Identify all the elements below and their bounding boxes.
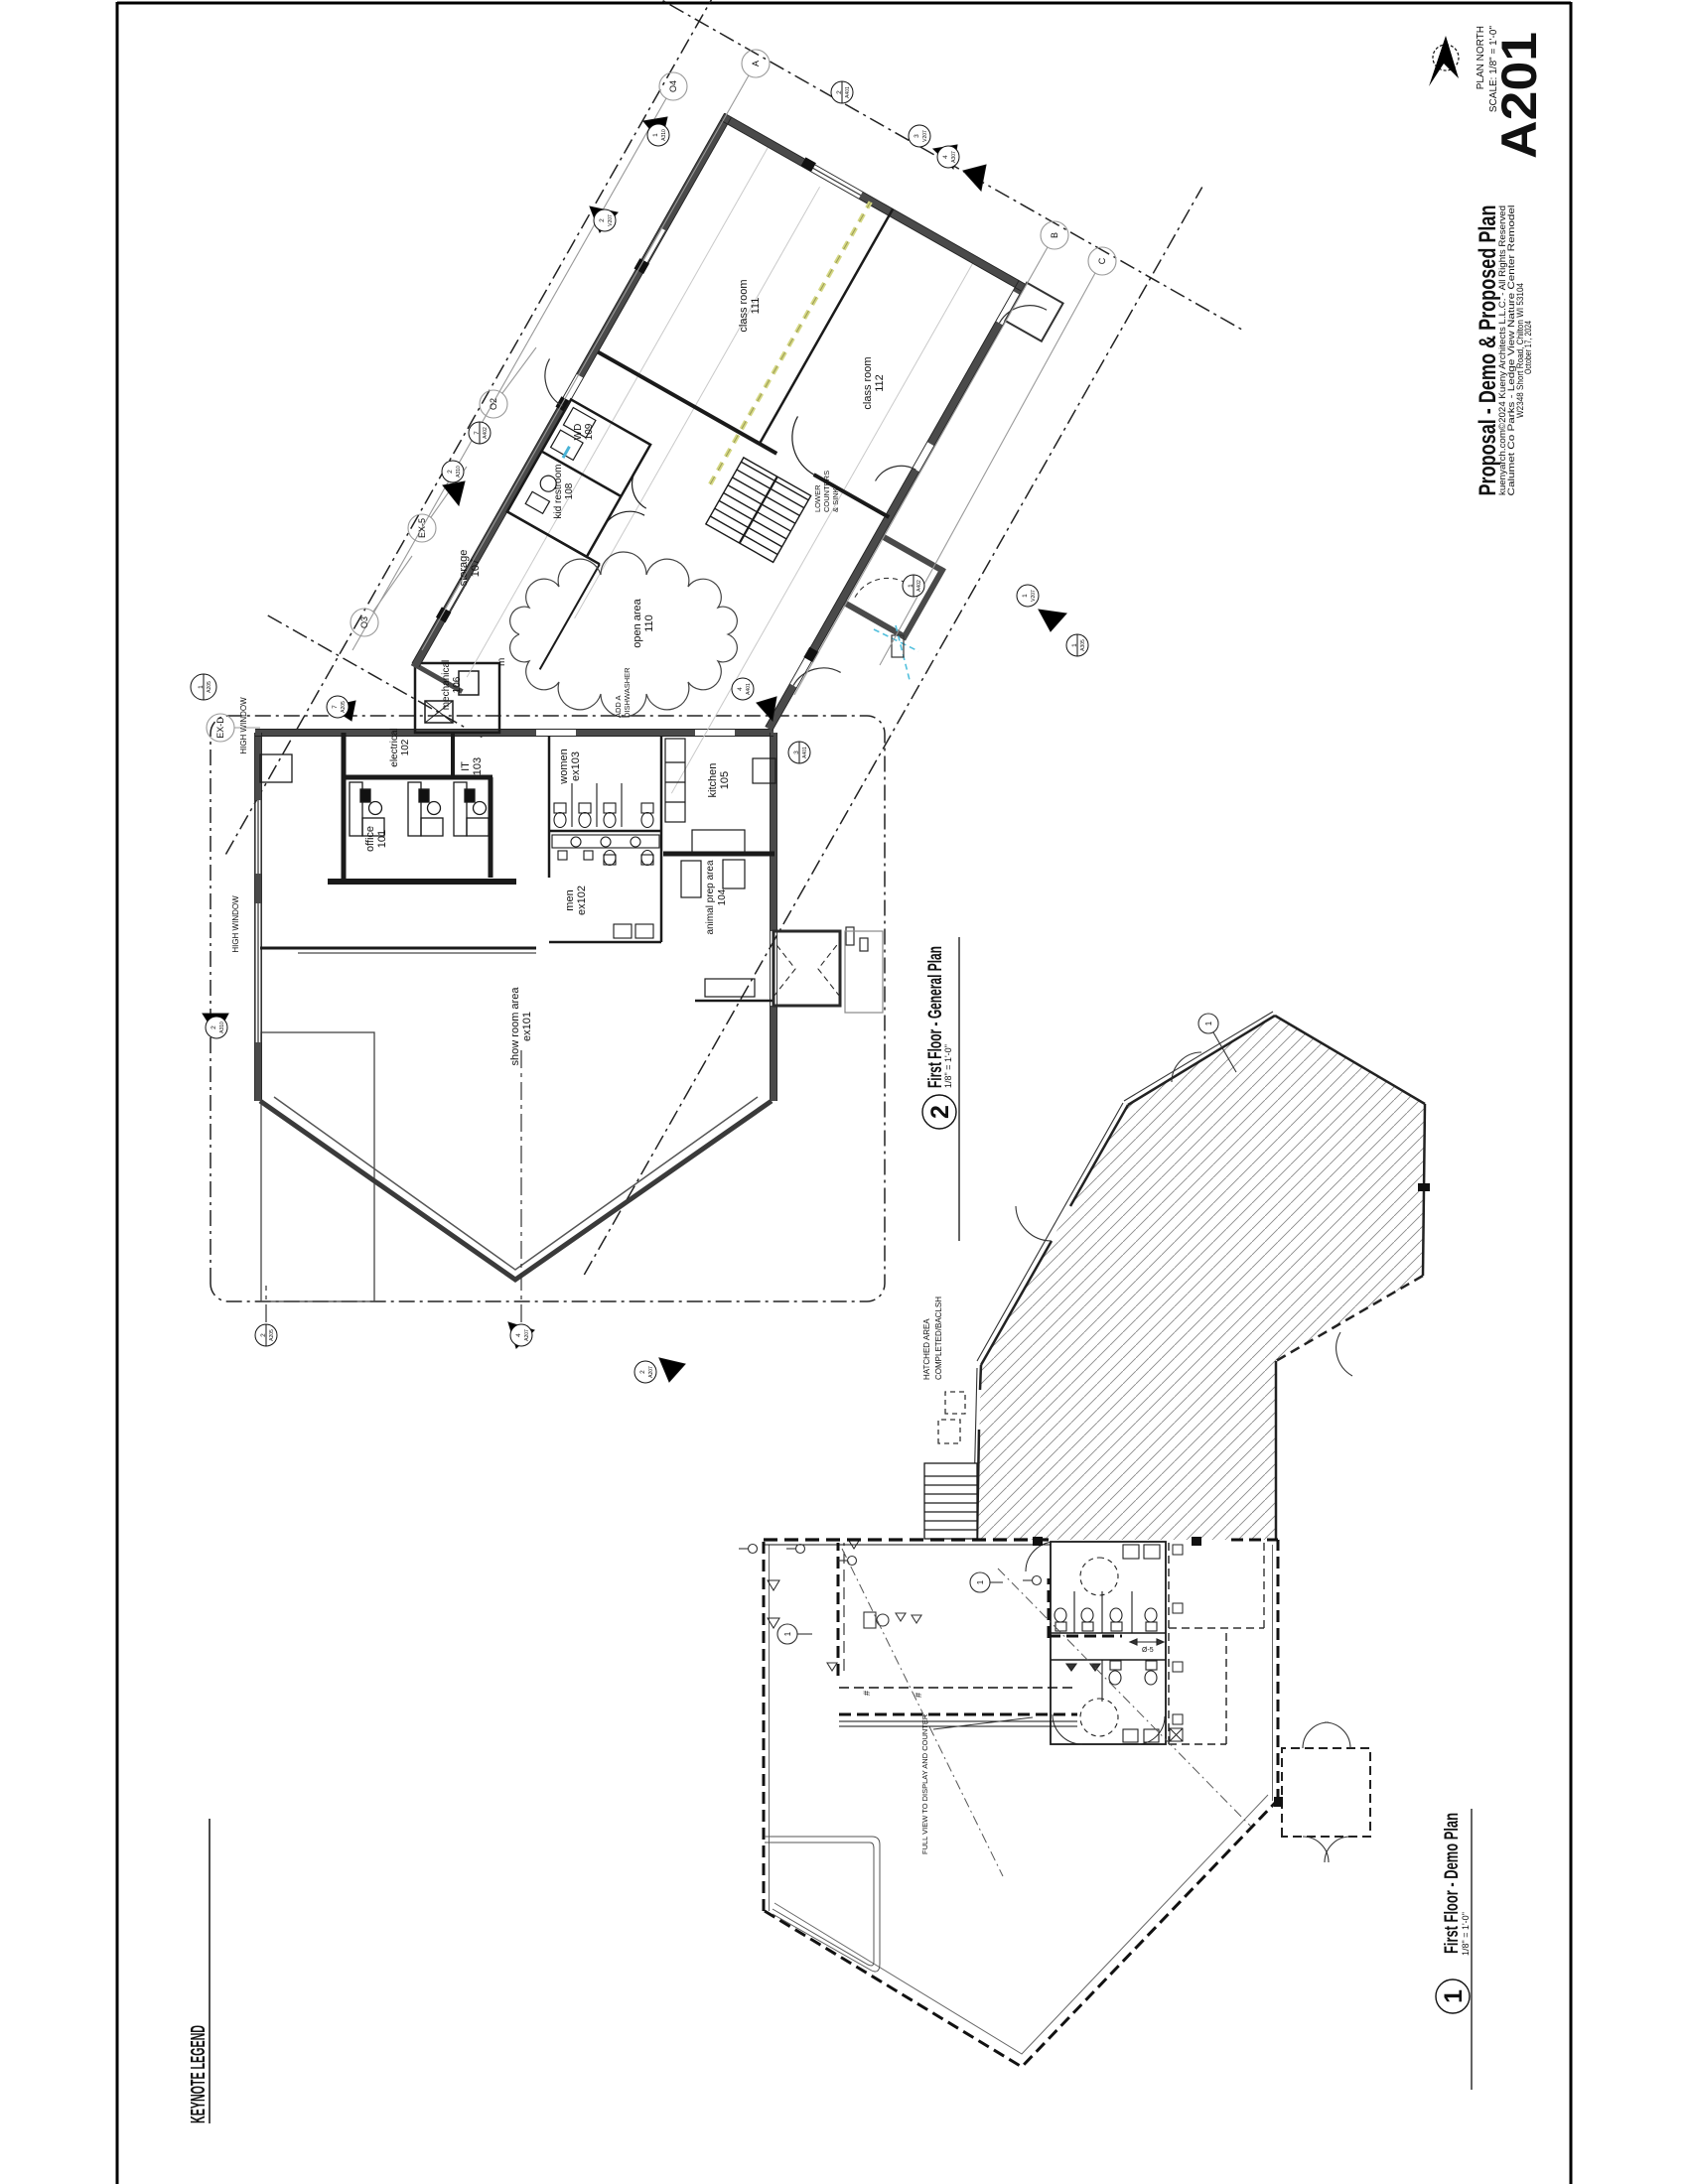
svg-text:show room area: show room area [509,987,521,1066]
svg-text:3: 3 [793,751,800,754]
svg-text:112: 112 [874,374,886,392]
svg-text:3: 3 [914,134,920,138]
svg-text:electrical: electrical [389,728,400,766]
svg-text:m: m [496,658,507,666]
svg-text:kitchen: kitchen [707,763,719,798]
svg-text:EX-5: EX-5 [417,518,427,538]
svg-text:111: 111 [750,298,762,315]
svg-text:A205: A205 [207,681,212,693]
svg-text:1: 1 [1440,1989,1468,2003]
svg-text:A207: A207 [648,1366,654,1378]
svg-text:A305: A305 [1080,639,1086,651]
svg-text:ADD A: ADD A [614,695,623,718]
svg-text:ex103: ex103 [570,751,582,781]
svg-text:1: 1 [1022,594,1029,598]
svg-text:A401: A401 [802,747,808,758]
svg-text:EX-D: EX-D [215,717,225,739]
svg-text:110: 110 [643,614,655,632]
svg-text:1/8" = 1'-0": 1/8" = 1'-0" [1461,1912,1471,1956]
svg-text:4: 4 [942,155,949,159]
svg-text:1: 1 [1204,1021,1213,1025]
svg-text:109: 109 [584,423,595,440]
svg-text:102: 102 [400,739,411,755]
svg-text:1: 1 [908,584,914,588]
svg-text:2: 2 [447,470,454,474]
svg-text:O4: O4 [668,80,678,92]
svg-text:2: 2 [639,1370,646,1374]
svg-text:7: 7 [332,705,339,709]
svg-text:4: 4 [737,687,744,691]
svg-text:2: 2 [836,90,843,94]
svg-text:A402: A402 [916,580,922,592]
svg-text:1: 1 [198,685,205,689]
svg-text:7: 7 [474,431,481,435]
svg-text:KEYNOTE LEGEND: KEYNOTE LEGEND [188,2025,210,2123]
svg-text:storage: storage [458,550,470,587]
svg-text:DISHWASHER: DISHWASHER [623,667,632,718]
svg-text:A310: A310 [219,1022,225,1033]
svg-text:101: 101 [376,830,388,848]
svg-text:IT: IT [460,761,472,771]
svg-text:PLAN NORTH: PLAN NORTH [1476,26,1486,89]
svg-text:4: 4 [515,1333,522,1337]
svg-text:WD: WD [573,424,584,441]
svg-text:A: A [751,61,761,67]
svg-text:First Floor - Demo Plan: First Floor - Demo Plan [1442,1813,1463,1954]
svg-text:104: 104 [717,888,728,905]
svg-text:men: men [564,889,576,910]
svg-text:HIGH WINDOW: HIGH WINDOW [231,895,240,953]
svg-text:& SINK: & SINK [831,487,840,512]
svg-text:1: 1 [783,1631,792,1636]
svg-text:ex102: ex102 [576,886,588,915]
svg-text:A205: A205 [341,701,347,713]
svg-text:COMPLETED/BACLSH: COMPLETED/BACLSH [934,1297,943,1380]
svg-text:A310: A310 [661,129,667,141]
svg-text:HATCHED AREA: HATCHED AREA [922,1318,931,1380]
svg-text:HIGH WINDOW: HIGH WINDOW [239,697,248,754]
svg-text:class room: class room [862,356,874,409]
svg-text:A402: A402 [483,427,489,439]
svg-text:108: 108 [564,482,575,499]
svg-text:open area: open area [632,598,643,647]
svg-text:class room: class room [738,279,750,332]
svg-text:COUNTERS: COUNTERS [822,471,831,512]
svg-text:A201: A201 [1491,32,1547,159]
svg-text:office: office [364,826,376,852]
svg-text:2: 2 [599,218,606,222]
svg-text:1: 1 [652,133,659,137]
svg-text:FULL VIEW TO DISPLAY AND COUNT: FULL VIEW TO DISPLAY AND COUNTER [920,1713,929,1854]
svg-text:C: C [1097,257,1107,264]
svg-text:A307: A307 [951,151,957,163]
svg-text:October 17, 2024: October 17, 2024 [1523,321,1533,374]
svg-text:1: 1 [976,1579,985,1584]
svg-text:V207: V207 [922,130,928,142]
svg-text:2: 2 [260,1333,267,1337]
svg-text:A401: A401 [746,683,752,695]
svg-text:women: women [558,749,570,784]
svg-text:107: 107 [470,559,482,577]
svg-text:animal prep area: animal prep area [705,860,716,934]
svg-text:mechanical: mechanical [441,660,452,711]
svg-text:A401: A401 [845,86,851,98]
svg-text:2: 2 [926,1105,954,1119]
svg-text:A310: A310 [456,466,462,478]
svg-text:103: 103 [472,757,484,775]
svg-text:V207: V207 [608,214,614,226]
svg-text:1: 1 [1071,643,1078,647]
svg-text:2: 2 [211,1025,217,1029]
svg-text:V207: V207 [1031,590,1037,602]
svg-text:Ø-5: Ø-5 [1142,1647,1154,1654]
svg-text:105: 105 [719,771,731,789]
svg-text:O2: O2 [489,398,498,410]
svg-text:1/8" = 1'-0": 1/8" = 1'-0" [943,1044,953,1088]
svg-text:106: 106 [452,676,463,693]
svg-text:#: # [862,1691,872,1696]
svg-text:LOWER: LOWER [813,484,822,512]
svg-text:A205: A205 [269,1329,275,1341]
svg-text:B: B [1050,232,1059,238]
svg-text:ex101: ex101 [521,1012,533,1041]
svg-text:A207: A207 [524,1329,530,1341]
svg-text:kid restroom: kid restroom [553,464,564,518]
svg-text:O3: O3 [359,616,369,628]
